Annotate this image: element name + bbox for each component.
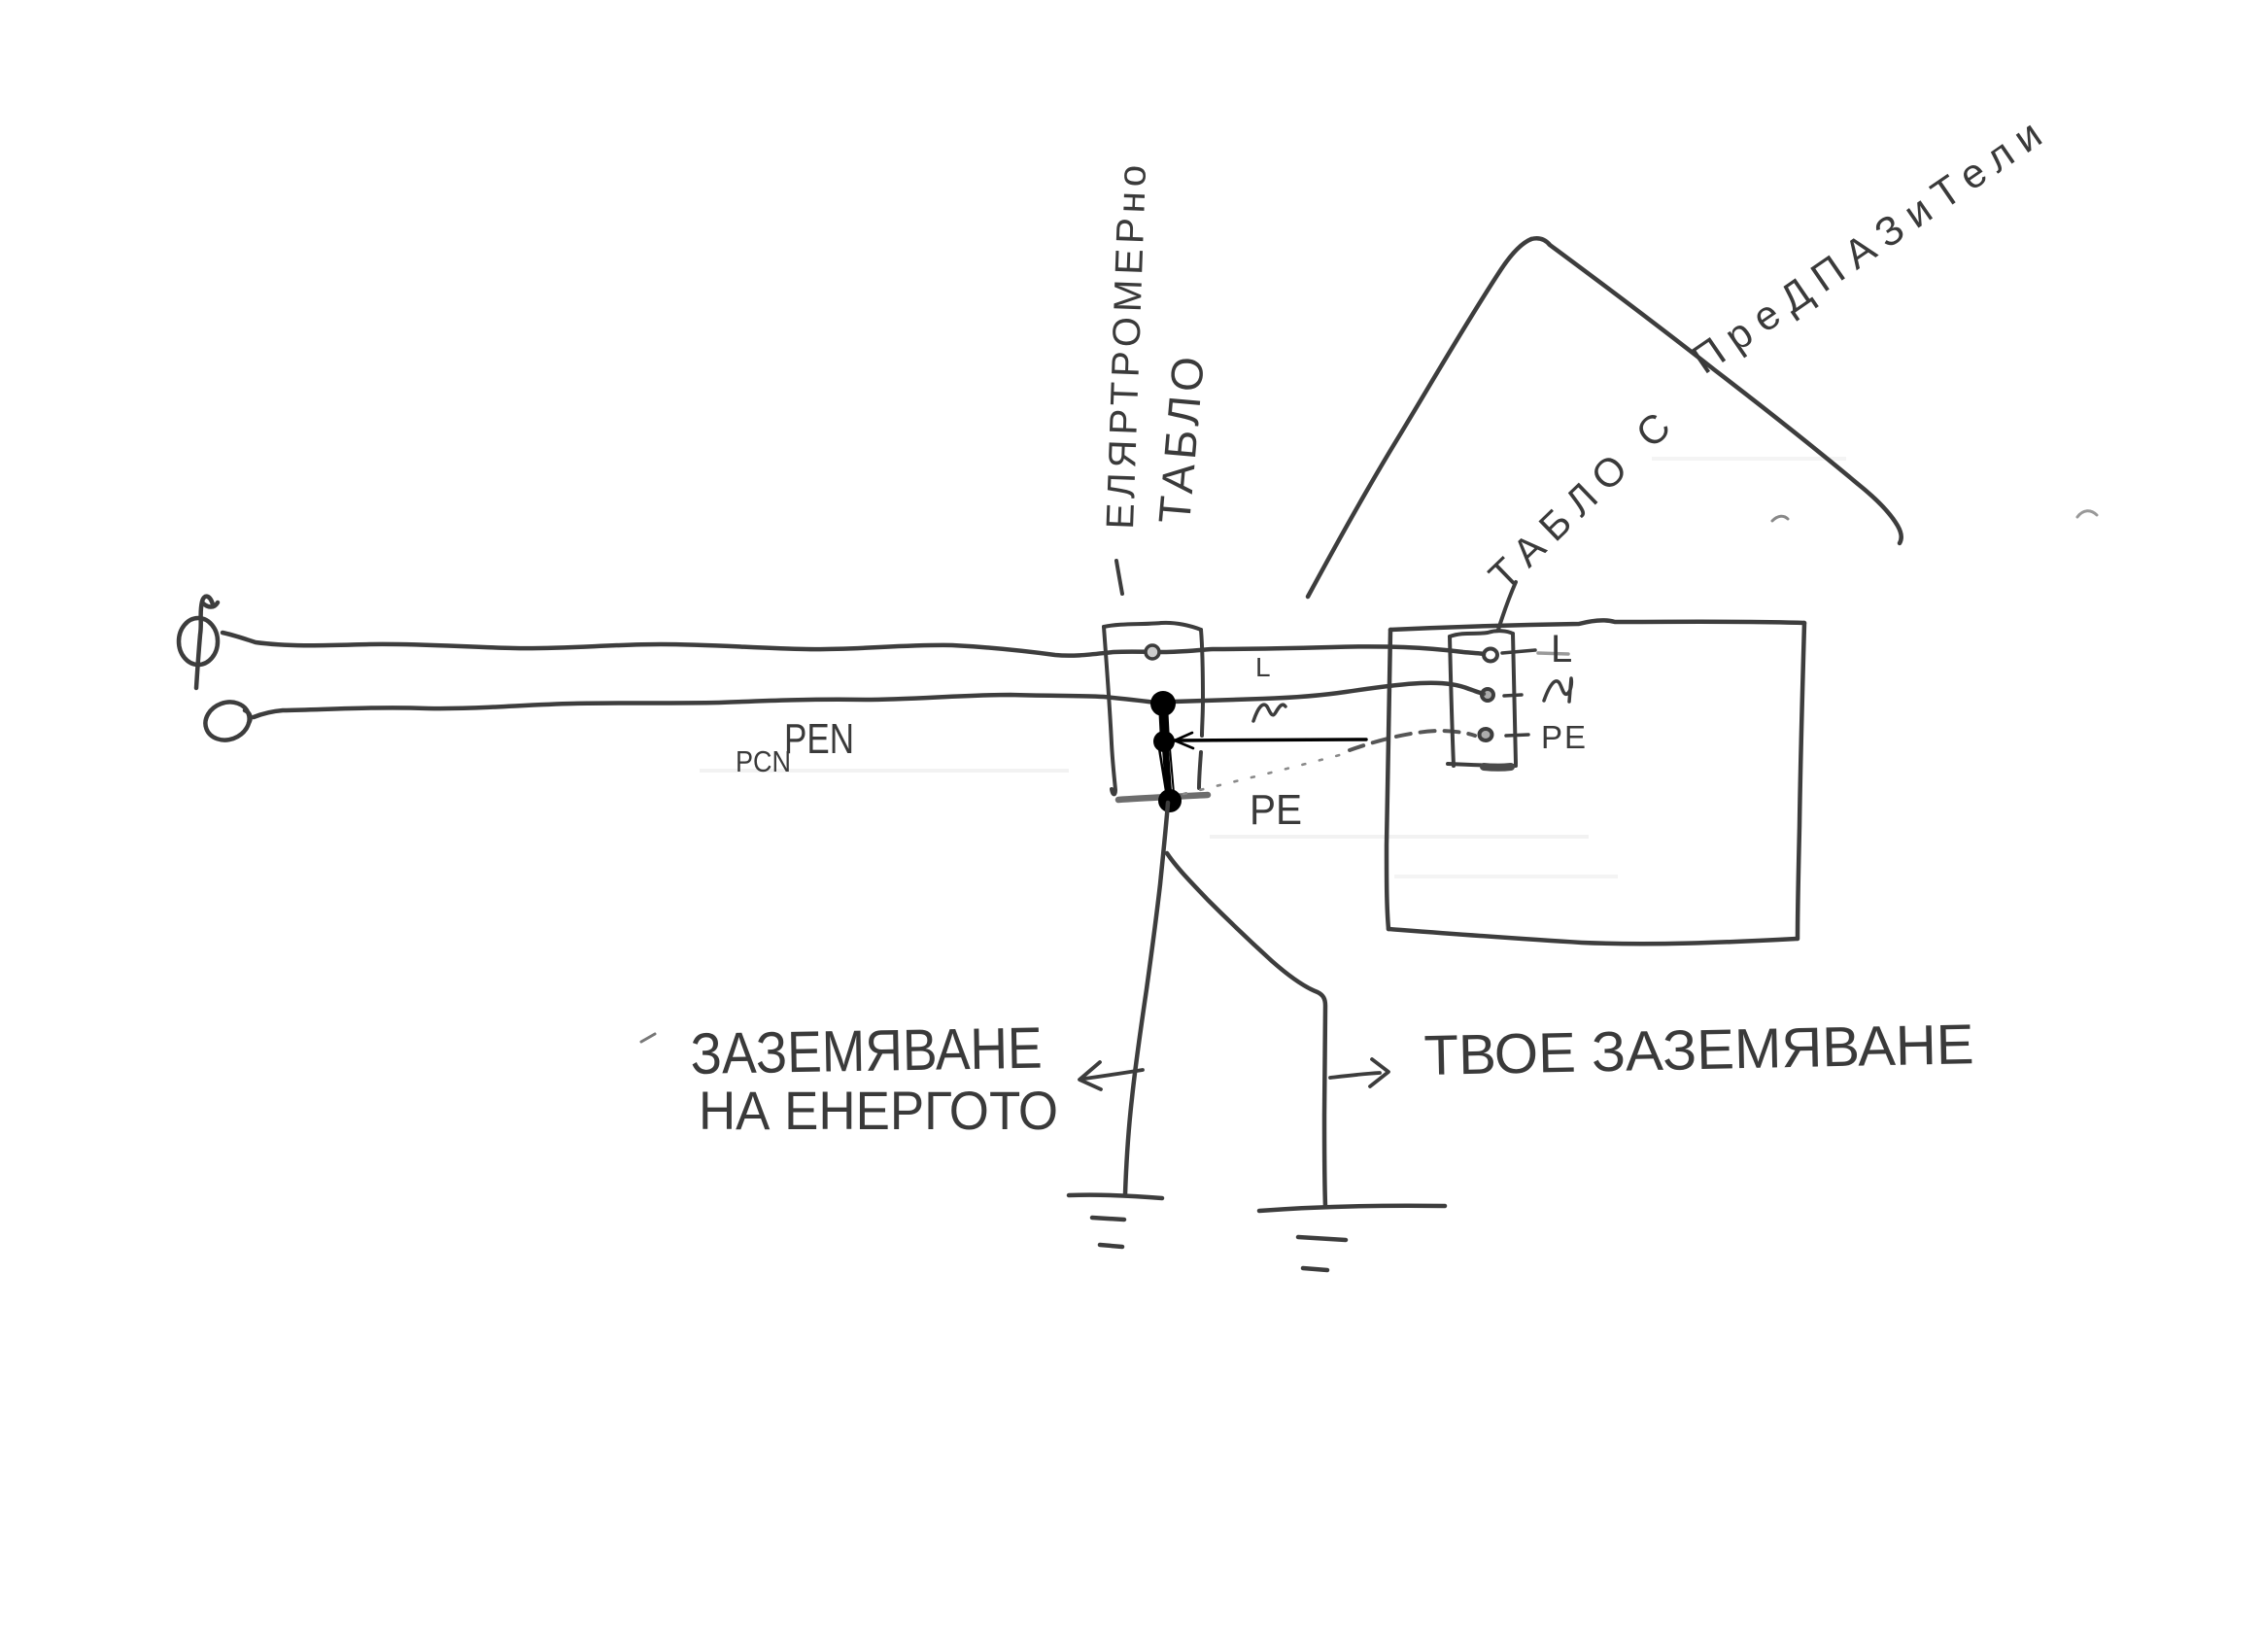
svg-text:ЗАЗЕМЯВАНЕ: ЗАЗЕМЯВАНЕ: [690, 1015, 1043, 1086]
svg-text:PEN: PEN: [784, 715, 854, 763]
svg-text:L: L: [1255, 652, 1271, 682]
svg-text:НА ЕНЕРГОТО: НА ЕНЕРГОТО: [699, 1080, 1058, 1141]
svg-text:PCN: PCN: [736, 744, 791, 778]
svg-text:ТВОЕ ЗАЗЕМЯВАНЕ: ТВОЕ ЗАЗЕМЯВАНЕ: [1423, 1013, 1974, 1087]
svg-text:PE: PE: [1250, 786, 1302, 834]
svg-text:L: L: [1551, 628, 1572, 671]
svg-text:PE: PE: [1541, 719, 1588, 755]
